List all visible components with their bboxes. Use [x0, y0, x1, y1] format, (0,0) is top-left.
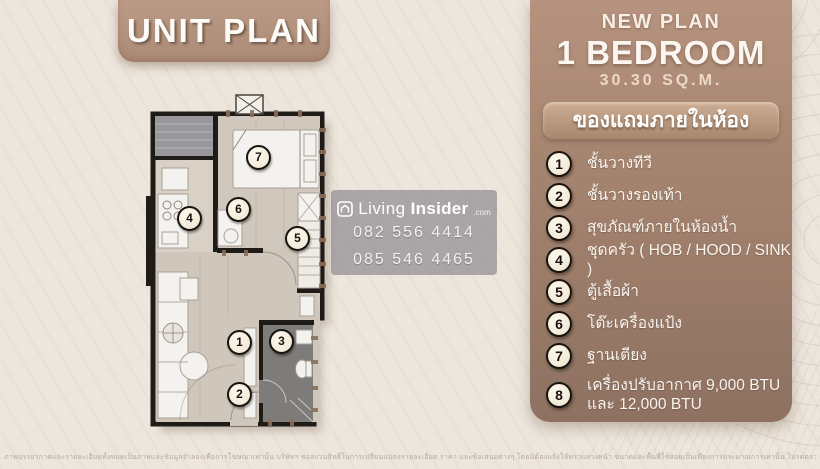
phone-number-1: 082 556 4414	[353, 219, 475, 246]
list-item: 5 ตู้เสื้อผ้า	[546, 276, 792, 308]
item-number-badge: 2	[546, 183, 572, 209]
watermark-box: LivingInsider.com 082 556 4414 085 546 4…	[331, 190, 497, 275]
item-number-badge: 4	[546, 247, 572, 273]
item-label: โต๊ะเครื่องแป้ง	[587, 314, 682, 333]
gift-header-bar: ของแถมภายในห้อง	[543, 102, 779, 139]
bedroom-label: 1 BEDROOM	[530, 36, 792, 69]
unit-plan-poster: UNIT PLAN	[0, 0, 820, 469]
ac-unit-icon	[236, 95, 263, 114]
item-number-badge: 7	[546, 343, 572, 369]
ceiling-fan-icon	[163, 323, 183, 343]
item-number-badge: 8	[546, 382, 572, 408]
item-label: ตู้เสื้อผ้า	[587, 282, 639, 301]
disclaimer: ภาพบรรยากาศและรายละเอียดทั้งหมดเป็นภาพแล…	[4, 452, 816, 463]
list-item: 6 โต๊ะเครื่องแป้ง	[546, 308, 792, 340]
brand-insider: Insider	[411, 199, 469, 219]
item-label: ชุดครัว ( HOB / HOOD / SINK )	[587, 241, 792, 280]
new-plan-label: NEW PLAN	[530, 11, 792, 34]
item-label: ชั้นวางรองเท้า	[587, 186, 683, 205]
list-item: 4 ชุดครัว ( HOB / HOOD / SINK )	[546, 244, 792, 276]
item-label: เครื่องปรับอากาศ 9,000 BTU และ 12,000 BT…	[587, 376, 780, 415]
list-item: 7 ฐานเตียง	[546, 340, 792, 372]
item-label: ชั้นวางทีวี	[587, 154, 652, 173]
plan-badge-2: 2	[227, 382, 252, 407]
page-title: UNIT PLAN	[127, 12, 321, 50]
item-label: ฐานเตียง	[587, 346, 647, 365]
item-number-badge: 5	[546, 279, 572, 305]
item-number-badge: 6	[546, 311, 572, 337]
title-plate: UNIT PLAN	[118, 0, 330, 62]
plan-badge-5: 5	[285, 226, 310, 251]
list-item: 3 สุขภัณฑ์ภายในห้องน้ำ	[546, 212, 792, 244]
plan-badge-1: 1	[227, 330, 252, 355]
list-item: 1 ชั้นวางทีวี	[546, 148, 792, 180]
livinginsider-logo-icon	[337, 201, 353, 217]
plan-badge-4: 4	[177, 206, 202, 231]
item-number-badge: 1	[546, 151, 572, 177]
phone-number-2: 085 546 4465	[353, 246, 475, 273]
item-number-badge: 3	[546, 215, 572, 241]
info-panel: NEW PLAN 1 BEDROOM 30.30 SQ.M. ของแถมภาย…	[530, 0, 792, 422]
area-label: 30.30 SQ.M.	[530, 72, 792, 90]
gift-header-label: ของแถมภายในห้อง	[573, 104, 750, 137]
item-label-line2: และ 12,000 BTU	[587, 396, 702, 413]
item-label: สุขภัณฑ์ภายในห้องน้ำ	[587, 218, 737, 237]
gift-list: 1 ชั้นวางทีวี 2 ชั้นวางรองเท้า 3 สุขภัณฑ…	[530, 139, 792, 418]
list-item: 2 ชั้นวางรองเท้า	[546, 180, 792, 212]
brand-row: LivingInsider.com	[337, 199, 491, 219]
list-item: 8 เครื่องปรับอากาศ 9,000 BTU และ 12,000 …	[546, 372, 792, 418]
plan-badge-7: 7	[246, 145, 271, 170]
brand-tld: .com	[473, 208, 490, 217]
brand-living: Living	[358, 199, 405, 219]
plan-badge-6: 6	[226, 197, 251, 222]
plan-badge-3: 3	[269, 329, 294, 354]
item-label-line1: เครื่องปรับอากาศ 9,000 BTU	[587, 377, 780, 394]
